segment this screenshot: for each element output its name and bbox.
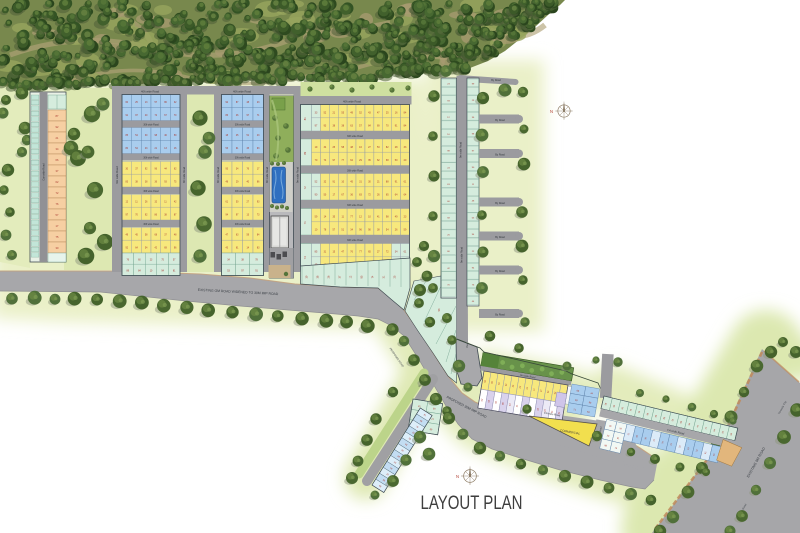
svg-text:30ft wide Road: 30ft wide Road: [347, 170, 364, 173]
svg-text:Car wide Road: Car wide Road: [42, 163, 46, 181]
svg-text:N: N: [456, 474, 459, 479]
svg-text:40ft wide Road: 40ft wide Road: [343, 99, 361, 103]
svg-text:9m wide Road: 9m wide Road: [460, 141, 463, 158]
svg-text:30ft wide Road: 30ft wide Road: [143, 190, 159, 193]
svg-text:30ft wide Road: 30ft wide Road: [347, 204, 364, 207]
svg-text:30ft wide Road: 30ft wide Road: [235, 223, 251, 226]
svg-text:40ft wide Road: 40ft wide Road: [141, 89, 159, 93]
svg-text:By Road: By Road: [495, 119, 505, 122]
svg-text:9m wide Road: 9m wide Road: [266, 166, 269, 183]
svg-text:9m wide Road: 9m wide Road: [183, 166, 186, 183]
svg-text:9m wide Road: 9m wide Road: [461, 246, 464, 263]
svg-text:30ft wide Road: 30ft wide Road: [347, 239, 364, 242]
svg-text:30ft wide Road: 30ft wide Road: [235, 190, 251, 193]
svg-text:9m wide Road: 9m wide Road: [297, 166, 300, 183]
svg-text:By Road: By Road: [495, 270, 505, 273]
svg-text:30ft wide Road: 30ft wide Road: [347, 135, 364, 138]
svg-text:By Road: By Road: [495, 154, 505, 157]
svg-text:LAYOUT PLAN: LAYOUT PLAN: [421, 492, 523, 514]
svg-text:By Road: By Road: [495, 202, 505, 205]
svg-text:By Road: By Road: [491, 79, 501, 82]
svg-text:30ft wide Road: 30ft wide Road: [143, 157, 159, 160]
svg-text:N: N: [550, 109, 553, 114]
svg-text:30ft wide Road: 30ft wide Road: [235, 124, 251, 127]
svg-text:By Road: By Road: [495, 314, 505, 317]
svg-text:30ft wide Road: 30ft wide Road: [143, 223, 159, 226]
svg-text:40ft wide Road: 40ft wide Road: [233, 89, 251, 93]
svg-text:9m wide Road: 9m wide Road: [217, 166, 220, 183]
svg-text:30ft wide Road: 30ft wide Road: [143, 124, 159, 127]
svg-text:By Road: By Road: [495, 236, 505, 239]
svg-text:30ft wide Road: 30ft wide Road: [235, 157, 251, 160]
svg-text:9m wide Road: 9m wide Road: [115, 166, 119, 184]
